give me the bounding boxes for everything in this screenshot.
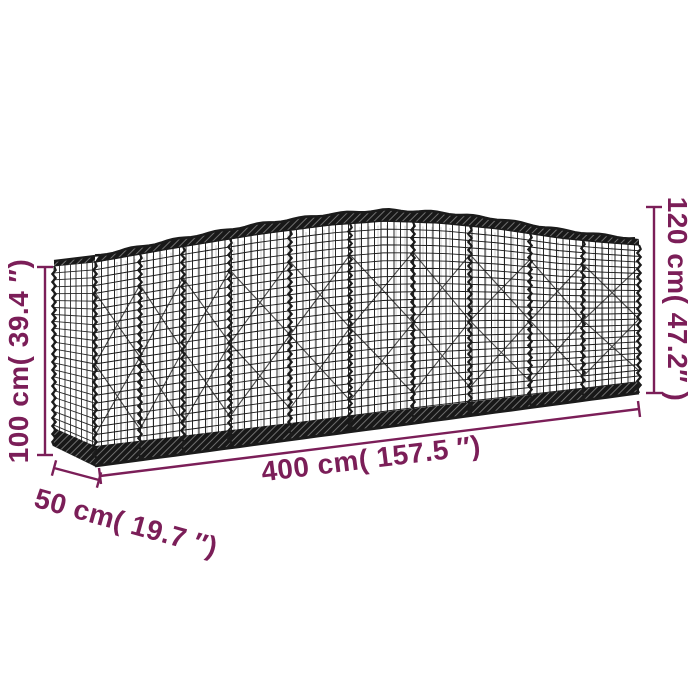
gabion-basket-illustration bbox=[52, 209, 640, 466]
diagram-canvas bbox=[0, 0, 700, 700]
dimension-label-height-right: 120 cm( 47.2″ ) bbox=[661, 197, 693, 402]
dimension-label-height-left: 100 cm( 39.4 ″) bbox=[3, 259, 35, 464]
dimension-line-height-left bbox=[37, 267, 53, 455]
product-dimension-diagram: 100 cm( 39.4 ″) 120 cm( 47.2″ ) 400 cm( … bbox=[0, 0, 700, 700]
dimension-line-height-right bbox=[646, 207, 662, 393]
